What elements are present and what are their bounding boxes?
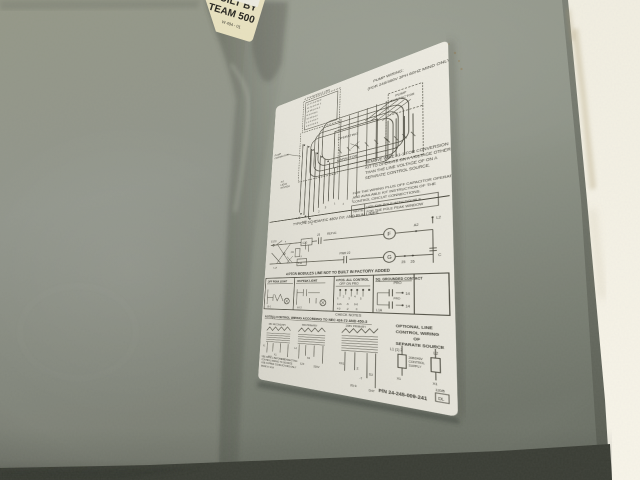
svg-text:D2: D2 xyxy=(369,373,373,377)
svg-text:26: 26 xyxy=(411,261,415,265)
svg-text:L5 0: L5 0 xyxy=(267,306,271,309)
svg-text:L2: L2 xyxy=(294,347,297,351)
svg-text:Z: Z xyxy=(357,368,359,372)
svg-text:X1: X1 xyxy=(433,383,438,388)
svg-text:-7: -7 xyxy=(359,377,362,381)
svg-text:Y12: Y12 xyxy=(298,262,303,265)
svg-text:14: 14 xyxy=(405,293,409,297)
svg-text:3: 3 xyxy=(325,207,327,210)
svg-text:D47: D47 xyxy=(369,389,375,394)
svg-text:14: 14 xyxy=(405,306,409,310)
svg-text:C20: C20 xyxy=(302,242,307,245)
svg-text:X2: X2 xyxy=(307,357,310,361)
svg-text:F: F xyxy=(387,231,391,238)
svg-text:L6 2: L6 2 xyxy=(297,307,302,310)
svg-text:25: 25 xyxy=(401,261,405,265)
svg-text:PRO: PRO xyxy=(394,282,403,286)
svg-text:L20: L20 xyxy=(300,363,304,367)
svg-text:L2: L2 xyxy=(436,216,441,220)
svg-text:X1: X1 xyxy=(397,377,401,382)
svg-text:2: 2 xyxy=(318,211,320,214)
svg-text:X1: X1 xyxy=(274,354,277,357)
svg-text:C61: C61 xyxy=(339,362,344,366)
svg-text:23: 23 xyxy=(317,234,320,237)
svg-text:L1: L1 xyxy=(263,345,266,348)
